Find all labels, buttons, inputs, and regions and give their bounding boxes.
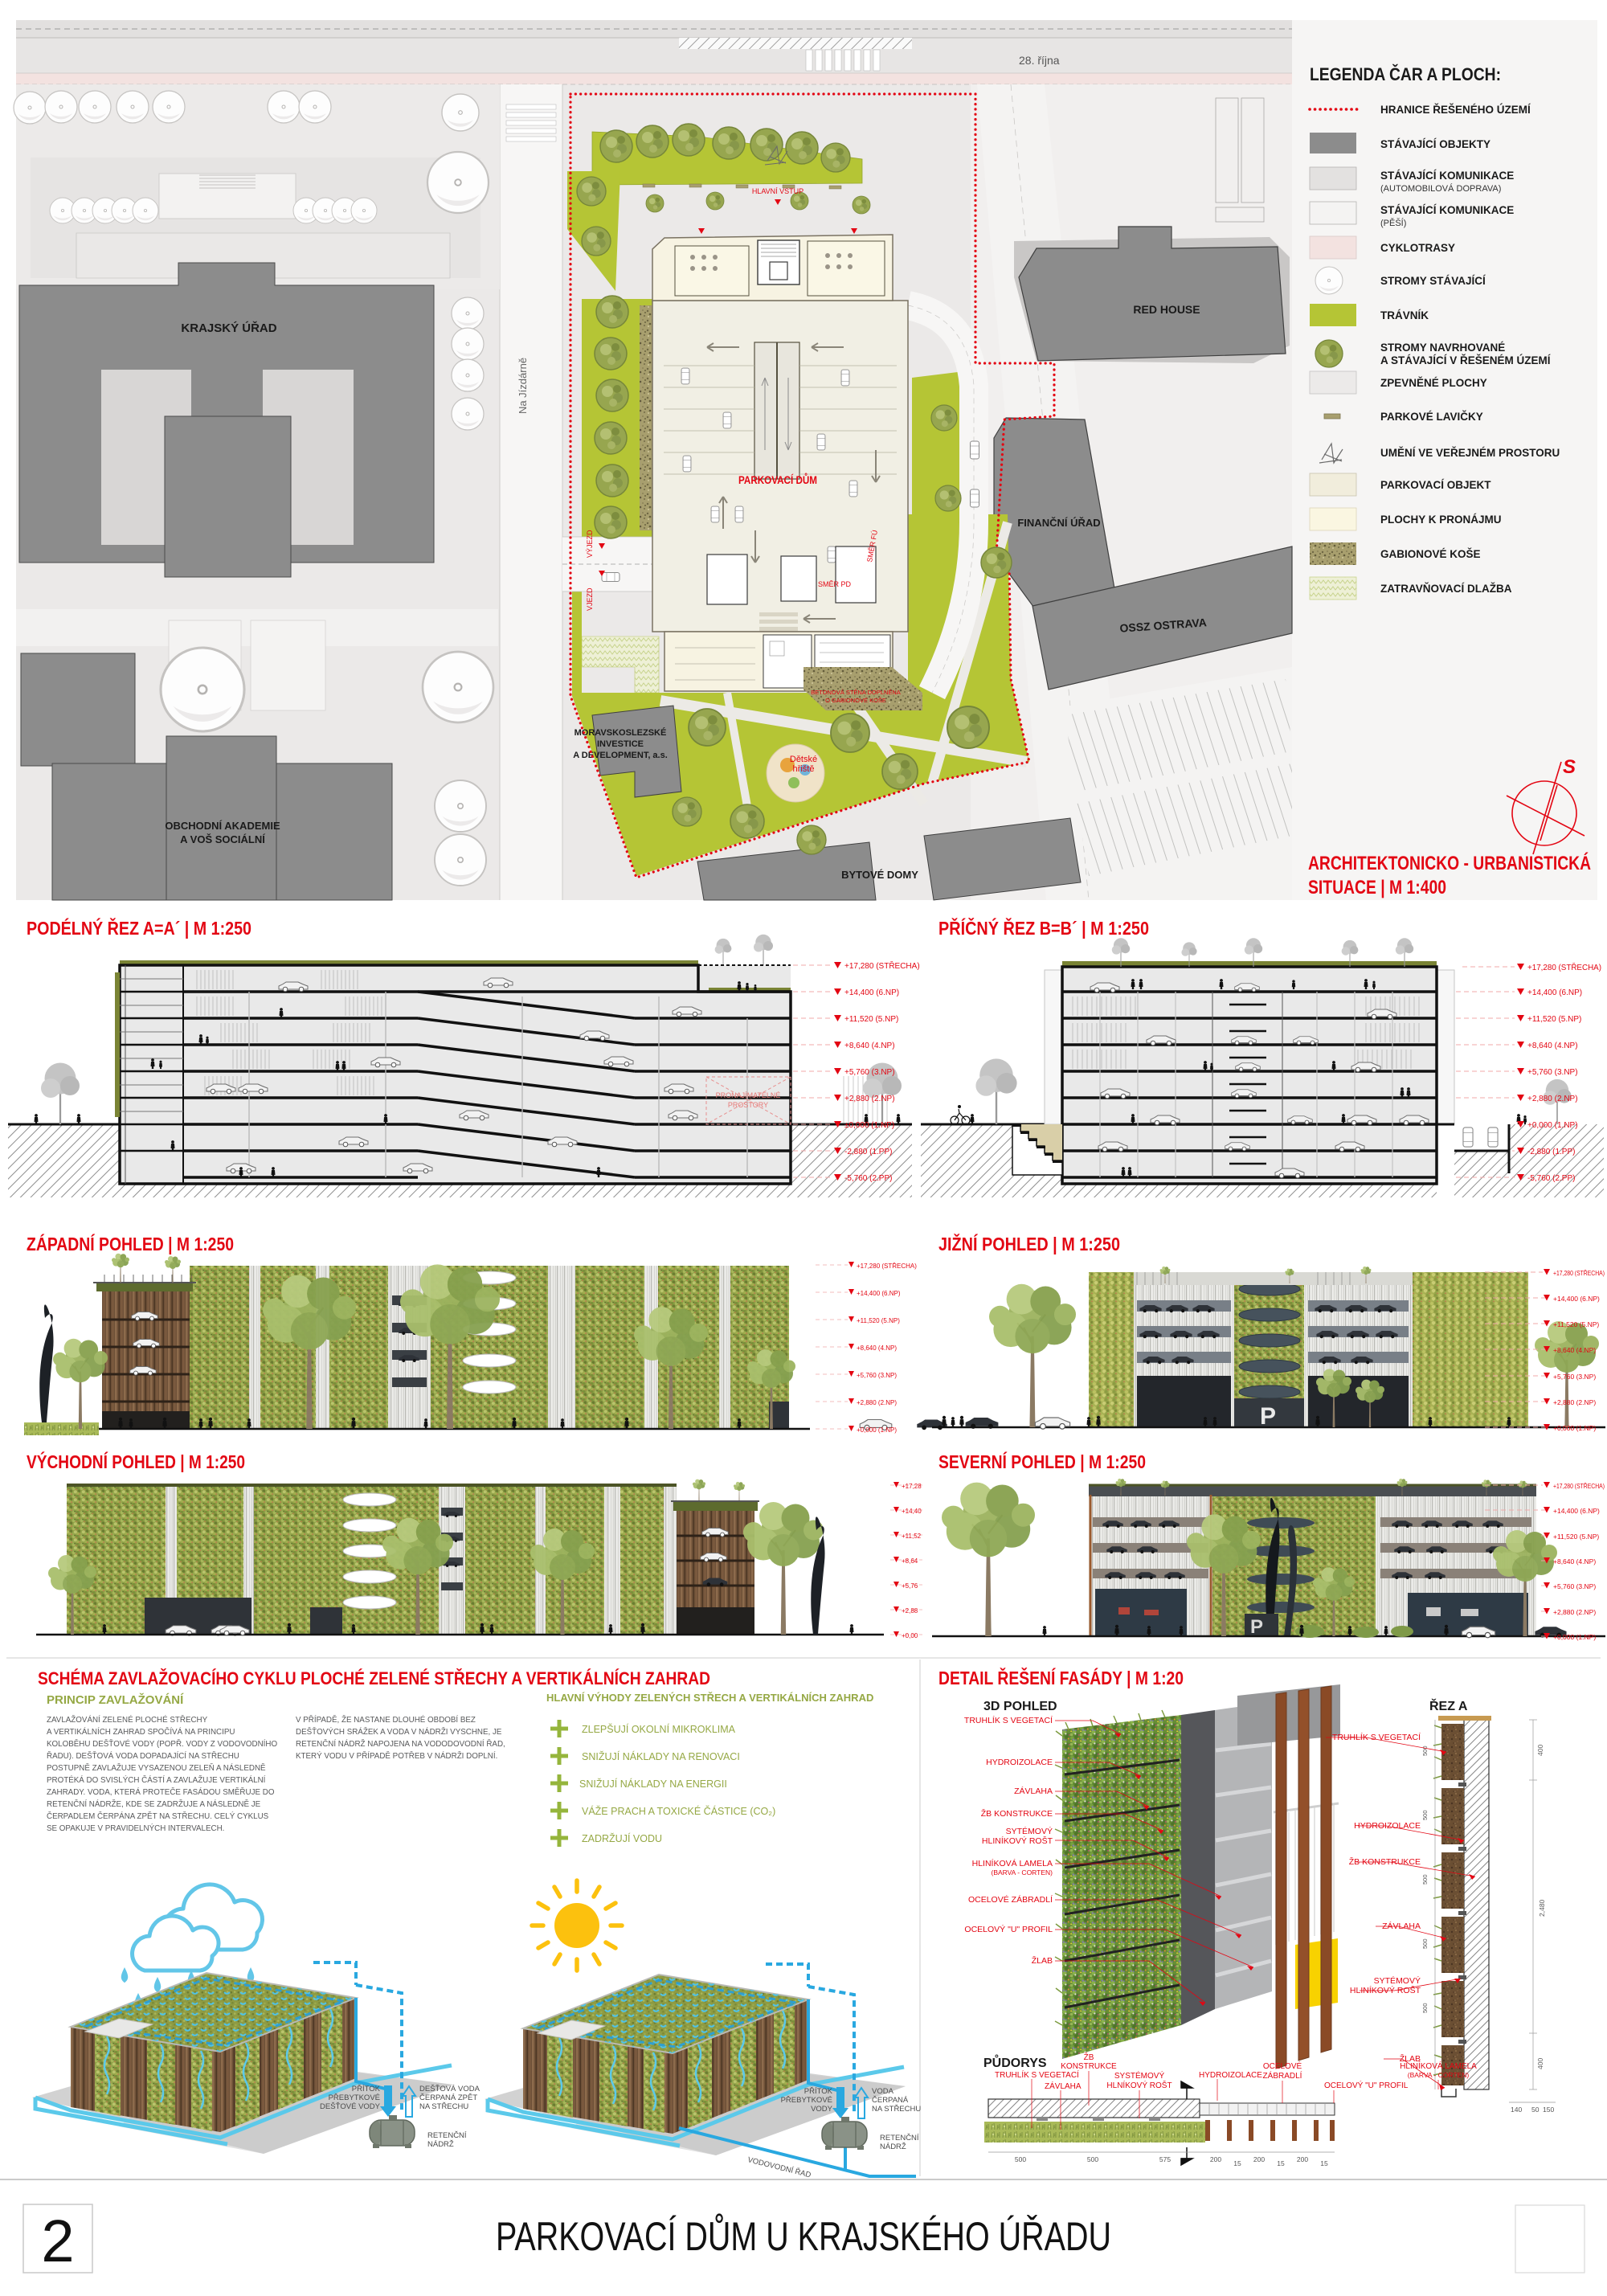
svg-text:SYTÉMOVÝ: SYTÉMOVÝ bbox=[1374, 1975, 1421, 1986]
svg-text:PRONAJÍMATELNÉ: PRONAJÍMATELNÉ bbox=[716, 1091, 781, 1099]
svg-text:PODÉLNÝ ŘEZ A=A´ | M 1:250: PODÉLNÝ ŘEZ A=A´ | M 1:250 bbox=[27, 917, 251, 939]
svg-text:+11,520 (5.NP): +11,520 (5.NP) bbox=[1527, 1015, 1581, 1024]
svg-text:-5,760 (2.PP): -5,760 (2.PP) bbox=[844, 1174, 892, 1183]
svg-text:(BARVA - CORTEN): (BARVA - CORTEN) bbox=[991, 1868, 1053, 1876]
svg-text:ŘEZ A: ŘEZ A bbox=[1429, 1698, 1468, 1713]
svg-text:HLAVNÍ VÝHODY ZELENÝCH STŘECH: HLAVNÍ VÝHODY ZELENÝCH STŘECH A VERTIKÁL… bbox=[546, 1692, 873, 1704]
svg-text:+0,00: +0,00 bbox=[902, 1632, 918, 1639]
svg-text:STÁVAJÍCÍ KOMUNIKACE: STÁVAJÍCÍ KOMUNIKACE bbox=[1380, 204, 1514, 216]
svg-text:SCHÉMA ZAVLAŽOVACÍHO CYKLU PLO: SCHÉMA ZAVLAŽOVACÍHO CYKLU PLOCHÉ ZELENÉ… bbox=[38, 1668, 710, 1688]
svg-text:+14,400 (6.NP): +14,400 (6.NP) bbox=[857, 1290, 901, 1297]
svg-text:+17,280 (STŘECHA): +17,280 (STŘECHA) bbox=[844, 960, 920, 971]
svg-text:KONSTRUKCE: KONSTRUKCE bbox=[1061, 2062, 1117, 2071]
svg-text:PRINCIP ZAVLAŽOVÁNÍ: PRINCIP ZAVLAŽOVÁNÍ bbox=[47, 1692, 184, 1707]
svg-text:P: P bbox=[1250, 1616, 1263, 1638]
svg-text:ZATRAVŇOVACÍ DLAŽBA: ZATRAVŇOVACÍ DLAŽBA bbox=[1380, 583, 1512, 595]
svg-text:-2,880 (1.PP): -2,880 (1.PP) bbox=[1527, 1148, 1575, 1156]
svg-text:+5,760 (3.NP): +5,760 (3.NP) bbox=[1527, 1068, 1578, 1077]
svg-text:±0,000 (1.NP): ±0,000 (1.NP) bbox=[844, 1121, 894, 1130]
svg-text:+17,280 (STŘECHA): +17,280 (STŘECHA) bbox=[1553, 1269, 1605, 1277]
svg-text:PARKOVACÍ DŮM: PARKOVACÍ DŮM bbox=[738, 473, 817, 486]
svg-text:TRÁVNÍK: TRÁVNÍK bbox=[1380, 309, 1429, 321]
svg-text:575: 575 bbox=[1159, 2155, 1171, 2163]
svg-text:NA STŘECHU: NA STŘECHU bbox=[419, 2102, 468, 2111]
svg-text:+11,52: +11,52 bbox=[902, 1533, 922, 1540]
svg-text:+0,000 (1.NP): +0,000 (1.NP) bbox=[857, 1426, 897, 1434]
svg-text:+8,640 (4.NP): +8,640 (4.NP) bbox=[857, 1344, 897, 1352]
svg-text:UMĚNÍ VE VEŘEJNÉM PROSTORU: UMĚNÍ VE VEŘEJNÉM PROSTORU bbox=[1380, 447, 1560, 459]
svg-text:ZÁBRADLÍ: ZÁBRADLÍ bbox=[1263, 2070, 1302, 2081]
svg-text:O GABIONOVÉ KOŠE: O GABIONOVÉ KOŠE bbox=[825, 697, 886, 704]
svg-text:+14,40: +14,40 bbox=[902, 1508, 922, 1515]
svg-text:VÝJEZD: VÝJEZD bbox=[586, 530, 594, 558]
svg-text:-2,880 (1.PP): -2,880 (1.PP) bbox=[844, 1148, 892, 1156]
svg-text:HYDROIZOLACE: HYDROIZOLACE bbox=[986, 1758, 1053, 1767]
svg-text:+2,880 (2.NP): +2,880 (2.NP) bbox=[844, 1095, 895, 1103]
svg-text:+0,000 (1.NP): +0,000 (1.NP) bbox=[1553, 1424, 1596, 1432]
svg-text:15: 15 bbox=[1320, 2159, 1328, 2167]
svg-text:HRANICE ŘEŠENÉHO ÚZEMÍ: HRANICE ŘEŠENÉHO ÚZEMÍ bbox=[1380, 104, 1531, 116]
svg-text:DETAIL ŘEŠENÍ FASÁDY | M 1:20: DETAIL ŘEŠENÍ FASÁDY | M 1:20 bbox=[938, 1667, 1184, 1688]
svg-text:STÁVAJÍCÍ OBJEKTY: STÁVAJÍCÍ OBJEKTY bbox=[1380, 138, 1490, 150]
svg-text:+8,640 (4.NP): +8,640 (4.NP) bbox=[1553, 1557, 1596, 1565]
svg-text:STÁVAJÍCÍ KOMUNIKACE: STÁVAJÍCÍ KOMUNIKACE bbox=[1380, 170, 1514, 182]
svg-text:SYSTÉMOVÝ: SYSTÉMOVÝ bbox=[1114, 2070, 1165, 2081]
svg-text:HLINÍKOVÁ LAMELA: HLINÍKOVÁ LAMELA bbox=[972, 1858, 1053, 1868]
svg-text:RETENČNÍ NÁDRŽ NAPOJENA NA VOD: RETENČNÍ NÁDRŽ NAPOJENA NA VODODOVODNÍ Ř… bbox=[296, 1740, 505, 1749]
svg-text:LEGENDA ČAR A PLOCH:: LEGENDA ČAR A PLOCH: bbox=[1310, 64, 1501, 84]
svg-text:ZPEVNĚNÉ PLOCHY: ZPEVNĚNÉ PLOCHY bbox=[1380, 377, 1487, 389]
svg-text:RETENČNÍ NÁDRŽE, KDE SE ZA: RETENČNÍ NÁDRŽE, KDE SE ZADRŽUJE A NÁSLE… bbox=[47, 1800, 261, 1809]
svg-text:+5,760 (3.NP): +5,760 (3.NP) bbox=[1553, 1582, 1596, 1590]
svg-text:JIŽNÍ POHLED | M 1:250: JIŽNÍ POHLED | M 1:250 bbox=[938, 1233, 1120, 1254]
svg-text:28. října: 28. října bbox=[1019, 54, 1060, 67]
svg-text:A DEVELOPMENT, a.s.: A DEVELOPMENT, a.s. bbox=[573, 751, 668, 760]
svg-text:+5,760 (3.NP): +5,760 (3.NP) bbox=[1553, 1373, 1596, 1381]
svg-text:TRUHLÍK S VEGETACÍ: TRUHLÍK S VEGETACÍ bbox=[964, 1715, 1053, 1725]
svg-text:ŽLAB: ŽLAB bbox=[1032, 1955, 1053, 1966]
svg-text:+2,880 (2.NP): +2,880 (2.NP) bbox=[1527, 1095, 1578, 1103]
svg-text:PŮDORYS: PŮDORYS bbox=[983, 2054, 1047, 2070]
svg-text:PŘÍTOK: PŘÍTOK bbox=[352, 2085, 381, 2093]
svg-text:Dětské: Dětské bbox=[790, 755, 817, 764]
svg-text:15: 15 bbox=[1233, 2159, 1241, 2167]
svg-text:A VOŠ SOCIÁLNÍ: A VOŠ SOCIÁLNÍ bbox=[180, 833, 265, 845]
svg-text:PŘÍČNÝ ŘEZ B=B´ | M 1:250: PŘÍČNÝ ŘEZ B=B´ | M 1:250 bbox=[938, 917, 1149, 939]
svg-text:ŽB: ŽB bbox=[1084, 2052, 1094, 2062]
svg-text:TRUHLÍK S VEGETACÍ: TRUHLÍK S VEGETACÍ bbox=[1332, 1732, 1421, 1742]
svg-text:500: 500 bbox=[1087, 2155, 1098, 2163]
svg-text:FINANČNÍ ÚŘAD: FINANČNÍ ÚŘAD bbox=[1017, 517, 1100, 529]
svg-text:KOLOBĚHU DEŠŤOVÉ VODY (POPŘ. V: KOLOBĚHU DEŠŤOVÉ VODY (POPŘ. VODY Z VODO… bbox=[47, 1740, 277, 1749]
svg-text:+5,760 (3.NP): +5,760 (3.NP) bbox=[844, 1068, 895, 1077]
svg-text:+14,400 (6.NP): +14,400 (6.NP) bbox=[1553, 1295, 1600, 1303]
svg-text:15: 15 bbox=[1277, 2159, 1285, 2167]
svg-text:SMĚR PD: SMĚR PD bbox=[818, 580, 852, 588]
svg-text:ZADRŽUJÍ VODU: ZADRŽUJÍ VODU bbox=[582, 1832, 662, 1844]
svg-text:(AUTOMOBILOVÁ DOPRAVA): (AUTOMOBILOVÁ DOPRAVA) bbox=[1380, 183, 1501, 194]
svg-text:(PĚŠÍ): (PĚŠÍ) bbox=[1380, 218, 1406, 228]
svg-text:BETONOVÁ STĚNA DOPLNĚNA: BETONOVÁ STĚNA DOPLNĚNA bbox=[811, 689, 901, 696]
svg-text:OCELOVÉ: OCELOVÉ bbox=[1263, 2061, 1302, 2071]
svg-text:V PŘÍPADĚ, ŽE NASTANE: V PŘÍPADĚ, ŽE NASTANE DLOUHÉ OBDOBÍ BEZ bbox=[296, 1716, 476, 1725]
svg-text:NÁDRŽ: NÁDRŽ bbox=[880, 2143, 906, 2151]
svg-text:3D POHLED: 3D POHLED bbox=[983, 1700, 1057, 1713]
svg-text:+11,520 (5.NP): +11,520 (5.NP) bbox=[857, 1317, 900, 1324]
svg-text:-5,760 (2.PP): -5,760 (2.PP) bbox=[1527, 1174, 1575, 1183]
svg-text:INVESTICE: INVESTICE bbox=[597, 739, 644, 749]
svg-text:PARKOVACÍ OBJEKT: PARKOVACÍ OBJEKT bbox=[1380, 479, 1491, 491]
svg-text:NA STŘECHU: NA STŘECHU bbox=[872, 2105, 921, 2114]
svg-text:+8,640 (4.NP): +8,640 (4.NP) bbox=[1527, 1042, 1578, 1050]
svg-text:S: S bbox=[1563, 756, 1576, 778]
svg-text:VJEZD: VJEZD bbox=[586, 587, 594, 611]
svg-text:ČERPANÁ: ČERPANÁ bbox=[872, 2096, 909, 2105]
svg-text:400: 400 bbox=[1536, 2058, 1544, 2069]
svg-text:ČERPADLEM ČERPÁNA ZPĚT NA: ČERPADLEM ČERPÁNA ZPĚT NA STŘECHU. CELÝ … bbox=[47, 1812, 269, 1821]
svg-text:SNIŽUJÍ NÁKLADY NA RENOVACI: SNIŽUJÍ NÁKLADY NA RENOVACI bbox=[582, 1750, 740, 1762]
svg-text:DEŠŤOVÝCH SRÁŽEK A VODA V NÁDR: DEŠŤOVÝCH SRÁŽEK A VODA V NÁDRŽI VYSCHNE… bbox=[296, 1728, 502, 1737]
svg-text:2: 2 bbox=[41, 2208, 74, 2274]
svg-text:SEVERNÍ POHLED | M 1:250: SEVERNÍ POHLED | M 1:250 bbox=[938, 1451, 1146, 1472]
svg-text:DEŠŤOVÉ VODY: DEŠŤOVÉ VODY bbox=[320, 2102, 381, 2111]
svg-text:200: 200 bbox=[1253, 2155, 1265, 2163]
svg-text:hřiště: hřiště bbox=[793, 764, 815, 774]
svg-text:ZÁVLAHA: ZÁVLAHA bbox=[1382, 1921, 1421, 1931]
svg-text:PŘÍTOK: PŘÍTOK bbox=[804, 2087, 833, 2096]
svg-text:HLNÍKOVÝ ROŠT: HLNÍKOVÝ ROŠT bbox=[1106, 2080, 1172, 2090]
svg-text:HLINÍKOVÁ LAMELA: HLINÍKOVÁ LAMELA bbox=[1400, 2061, 1477, 2071]
svg-text:500: 500 bbox=[1421, 2003, 1429, 2013]
svg-text:KTERÝ VODU V PŘÍPADĚ POTŘEB V: KTERÝ VODU V PŘÍPADĚ POTŘEB V NÁDRŽI DOP… bbox=[296, 1752, 497, 1761]
svg-text:VÝCHODNÍ POHLED | M 1:250: VÝCHODNÍ POHLED | M 1:250 bbox=[27, 1451, 245, 1472]
svg-text:200: 200 bbox=[1297, 2155, 1308, 2163]
svg-text:ZÁVLAHA: ZÁVLAHA bbox=[1045, 2081, 1082, 2091]
svg-text:STROMY STÁVAJÍCÍ: STROMY STÁVAJÍCÍ bbox=[1380, 275, 1486, 287]
svg-text:500: 500 bbox=[1421, 1938, 1429, 1949]
svg-text:SITUACE | M 1:400: SITUACE | M 1:400 bbox=[1308, 877, 1446, 898]
svg-text:400: 400 bbox=[1536, 1745, 1544, 1756]
svg-text:HYDROIZOLACE: HYDROIZOLACE bbox=[1199, 2071, 1262, 2080]
svg-text:2,480: 2,480 bbox=[1538, 1899, 1546, 1917]
svg-text:PŘEBYTKOVÉ: PŘEBYTKOVÉ bbox=[781, 2096, 832, 2105]
svg-text:PŘEBYTKOVÉ: PŘEBYTKOVÉ bbox=[329, 2093, 380, 2102]
svg-text:RETENČNÍ: RETENČNÍ bbox=[880, 2134, 919, 2143]
svg-text:ŘADU). DEŠŤOVÁ VODA DOPADAJ: ŘADU). DEŠŤOVÁ VODA DOPADAJÍCÍ NA STŘECH… bbox=[47, 1752, 239, 1761]
svg-text:POSTUPNĚ ZAVLAŽUJE VYSAZENOU: POSTUPNĚ ZAVLAŽUJE VYSAZENOU ZELEŇ A NÁS… bbox=[47, 1764, 266, 1773]
svg-text:SE OPAKUJE V PRAVIDELNÝCH INTE: SE OPAKUJE V PRAVIDELNÝCH INTERVALECH. bbox=[47, 1824, 224, 1833]
svg-text:+2,880 (2.NP): +2,880 (2.NP) bbox=[1553, 1398, 1596, 1406]
svg-text:VÁŽE PRACH A TOXICKÉ ČÁSTICE (: VÁŽE PRACH A TOXICKÉ ČÁSTICE (CO₂) bbox=[582, 1805, 775, 1817]
svg-text:VODY: VODY bbox=[811, 2105, 833, 2114]
svg-text:+5,760 (3.NP): +5,760 (3.NP) bbox=[857, 1372, 897, 1379]
svg-text:HLINÍKOVÝ ROŠT: HLINÍKOVÝ ROŠT bbox=[982, 1836, 1053, 1846]
svg-text:ČERPANÁ ZPĚT: ČERPANÁ ZPĚT bbox=[419, 2093, 477, 2102]
svg-text:ZAHRADY. VODA, KTERÁ PROTEČ: ZAHRADY. VODA, KTERÁ PROTEČE FASÁDOU SMĚ… bbox=[47, 1788, 275, 1797]
svg-text:P: P bbox=[1260, 1403, 1276, 1430]
svg-text:150: 150 bbox=[1543, 2106, 1554, 2114]
svg-text:A VERTIKÁLNÍCH ZAHRAD SPOČÍ: A VERTIKÁLNÍCH ZAHRAD SPOČÍVÁ NA PRINCIP… bbox=[47, 1728, 235, 1737]
svg-text:GABIONOVÉ KOŠE: GABIONOVÉ KOŠE bbox=[1380, 548, 1481, 560]
svg-text:VODA: VODA bbox=[872, 2087, 894, 2096]
svg-text:ZÁPADNÍ POHLED | M 1:250: ZÁPADNÍ POHLED | M 1:250 bbox=[27, 1233, 234, 1254]
svg-text:+14,400 (6.NP): +14,400 (6.NP) bbox=[844, 988, 899, 997]
svg-text:RED HOUSE: RED HOUSE bbox=[1133, 303, 1200, 316]
svg-text:ZLEPŠUJÍ OKOLNÍ MIKROKLIMA: ZLEPŠUJÍ OKOLNÍ MIKROKLIMA bbox=[582, 1723, 736, 1735]
svg-text:500: 500 bbox=[1421, 1874, 1429, 1885]
svg-text:ZAVLAŽOVÁNÍ ZELENÉ PLOCHÉ S: ZAVLAŽOVÁNÍ ZELENÉ PLOCHÉ STŘECHY bbox=[47, 1716, 208, 1725]
svg-text:RETENČNÍ: RETENČNÍ bbox=[427, 2131, 467, 2140]
svg-text:OCELOVÉ ZÁBRADLÍ: OCELOVÉ ZÁBRADLÍ bbox=[968, 1894, 1053, 1905]
svg-text:Na Jízdárně: Na Jízdárně bbox=[517, 358, 529, 414]
svg-text:+0,000 (1.NP): +0,000 (1.NP) bbox=[1527, 1121, 1578, 1130]
svg-text:+8,640 (4.NP): +8,640 (4.NP) bbox=[1553, 1346, 1596, 1354]
svg-text:OBCHODNÍ AKADEMIE: OBCHODNÍ AKADEMIE bbox=[165, 820, 280, 832]
svg-text:+17,28: +17,28 bbox=[902, 1483, 922, 1490]
svg-text:KRAJSKÝ ÚŘAD: KRAJSKÝ ÚŘAD bbox=[181, 321, 276, 335]
svg-text:PROTÉKÁ DO SVISLÝCH ČÁSTÍ: PROTÉKÁ DO SVISLÝCH ČÁSTÍ A ZAVLAŽUJE VE… bbox=[47, 1776, 266, 1785]
svg-text:+17,280 (STŘECHA): +17,280 (STŘECHA) bbox=[857, 1263, 917, 1270]
svg-text:+14,400 (6.NP): +14,400 (6.NP) bbox=[1527, 988, 1582, 997]
svg-text:+2,88: +2,88 bbox=[902, 1607, 918, 1615]
svg-text:500: 500 bbox=[1015, 2155, 1026, 2163]
svg-text:+8,64: +8,64 bbox=[902, 1557, 918, 1565]
svg-text:CYKLOTRASY: CYKLOTRASY bbox=[1380, 242, 1455, 254]
svg-text:ŽB KONSTRUKCE: ŽB KONSTRUKCE bbox=[981, 1808, 1053, 1819]
svg-text:+11,520 (5.NP): +11,520 (5.NP) bbox=[1553, 1320, 1599, 1328]
svg-text:BYTOVÉ DOMY: BYTOVÉ DOMY bbox=[841, 869, 918, 881]
svg-text:STROMY NAVRHOVANÉ: STROMY NAVRHOVANÉ bbox=[1380, 342, 1505, 354]
svg-text:+2,880 (2.NP): +2,880 (2.NP) bbox=[857, 1399, 897, 1406]
svg-text:+5,76: +5,76 bbox=[902, 1582, 918, 1590]
svg-text:OCELOVÝ "U" PROFIL: OCELOVÝ "U" PROFIL bbox=[964, 1924, 1053, 1934]
svg-text:HLINÍKOVÝ ROŠT: HLINÍKOVÝ ROŠT bbox=[1350, 1985, 1421, 1995]
svg-text:+0,000 (1.NP): +0,000 (1.NP) bbox=[1553, 1633, 1596, 1641]
svg-text:140: 140 bbox=[1511, 2106, 1522, 2114]
svg-text:PARKOVACÍ DŮM U KRAJSKÉHO ÚŘAD: PARKOVACÍ DŮM U KRAJSKÉHO ÚŘADU bbox=[496, 2213, 1111, 2259]
svg-text:200: 200 bbox=[1210, 2155, 1221, 2163]
svg-text:+2,880 (2.NP): +2,880 (2.NP) bbox=[1553, 1608, 1596, 1616]
svg-text:OCELOVÝ "U" PROFIL: OCELOVÝ "U" PROFIL bbox=[1324, 2080, 1409, 2090]
svg-text:PLOCHY K PRONÁJMU: PLOCHY K PRONÁJMU bbox=[1380, 514, 1502, 526]
svg-text:500: 500 bbox=[1421, 1810, 1429, 1820]
svg-text:A STÁVAJÍCÍ V ŘEŠENÉM ÚZEMÍ: A STÁVAJÍCÍ V ŘEŠENÉM ÚZEMÍ bbox=[1380, 354, 1552, 366]
svg-text:SNIŽUJÍ NÁKLADY NA ENERGII: SNIŽUJÍ NÁKLADY NA ENERGII bbox=[579, 1778, 727, 1790]
svg-text:TRUHLÍK S VEGETACÍ: TRUHLÍK S VEGETACÍ bbox=[995, 2069, 1079, 2080]
svg-text:DEŠŤOVÁ VODA: DEŠŤOVÁ VODA bbox=[419, 2085, 480, 2093]
svg-text:50: 50 bbox=[1531, 2106, 1540, 2114]
svg-text:HLAVNÍ VSTUP: HLAVNÍ VSTUP bbox=[752, 187, 803, 195]
svg-text:(BARVA - CORTEN): (BARVA - CORTEN) bbox=[1408, 2071, 1470, 2079]
svg-text:PARKOVÉ LAVIČKY: PARKOVÉ LAVIČKY bbox=[1380, 411, 1483, 423]
svg-text:SYTÉMOVÝ: SYTÉMOVÝ bbox=[1006, 1826, 1053, 1836]
svg-text:+11,520 (5.NP): +11,520 (5.NP) bbox=[1553, 1533, 1599, 1541]
svg-text:+17,280 (STŘECHA): +17,280 (STŘECHA) bbox=[1527, 962, 1601, 972]
svg-text:ARCHITEKTONICKO - URBANISTICKÁ: ARCHITEKTONICKO - URBANISTICKÁ bbox=[1308, 852, 1591, 874]
svg-text:+11,520 (5.NP): +11,520 (5.NP) bbox=[844, 1015, 898, 1024]
svg-text:MORAVSKOSLEZSKÉ: MORAVSKOSLEZSKÉ bbox=[575, 727, 667, 738]
svg-text:+17,280 (STŘECHA): +17,280 (STŘECHA) bbox=[1553, 1482, 1605, 1490]
svg-text:+14,400 (6.NP): +14,400 (6.NP) bbox=[1553, 1507, 1600, 1515]
svg-text:+8,640 (4.NP): +8,640 (4.NP) bbox=[844, 1042, 895, 1050]
svg-text:PROSTORY: PROSTORY bbox=[728, 1101, 768, 1109]
svg-text:ZÁVLAHA: ZÁVLAHA bbox=[1014, 1786, 1053, 1796]
svg-text:NÁDRŽ: NÁDRŽ bbox=[427, 2140, 454, 2149]
